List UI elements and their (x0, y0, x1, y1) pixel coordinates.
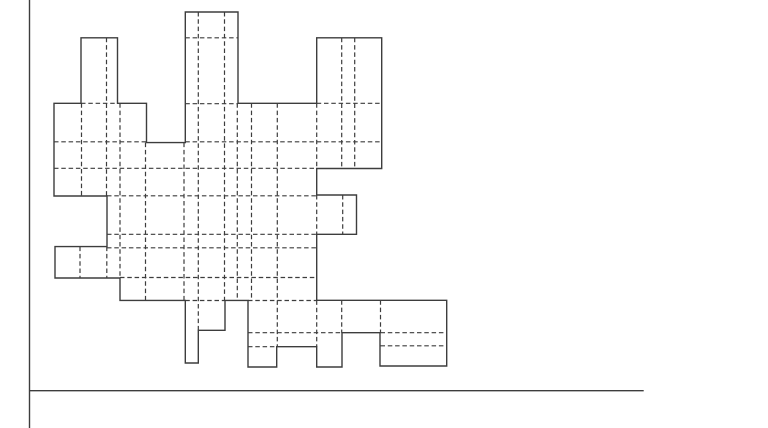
polyomino-outline (54, 12, 447, 367)
screenshot-root: { "figure": { "canvas": { "width": 768, … (0, 0, 768, 428)
figure-canvas (0, 0, 768, 428)
polyomino-figure (0, 0, 768, 428)
